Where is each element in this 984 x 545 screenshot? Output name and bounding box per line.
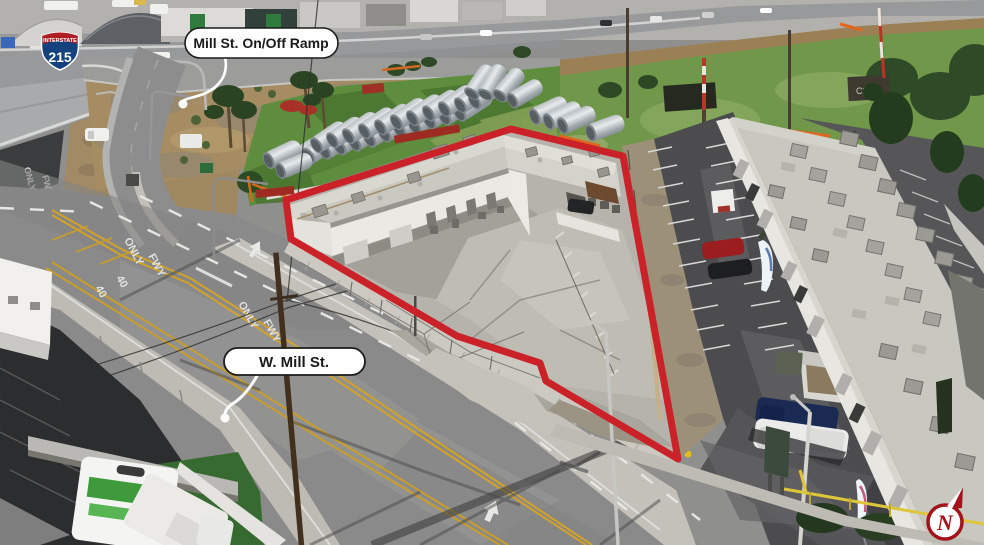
svg-text:W. Mill St.: W. Mill St. xyxy=(259,354,329,371)
svg-text:Mill St. On/Off Ramp: Mill St. On/Off Ramp xyxy=(193,35,328,51)
svg-text:N: N xyxy=(936,510,954,535)
svg-text:215: 215 xyxy=(48,49,72,65)
svg-text:INTERSTATE: INTERSTATE xyxy=(43,38,77,44)
